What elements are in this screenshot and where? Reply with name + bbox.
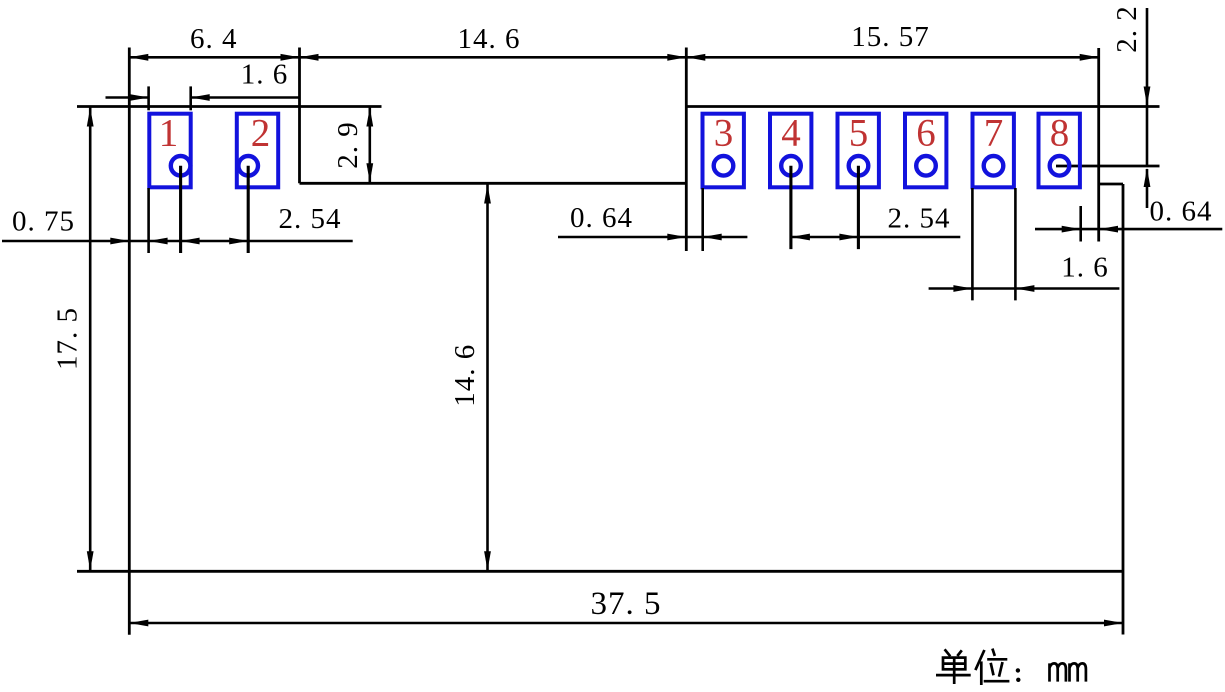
svg-text:4: 4 (781, 112, 801, 155)
svg-text:7: 7 (984, 112, 1004, 155)
svg-text:8: 8 (1050, 112, 1070, 155)
svg-text:1: 1 (159, 112, 179, 155)
svg-text:0. 75: 0. 75 (12, 206, 75, 238)
svg-text:14. 6: 14. 6 (449, 344, 481, 407)
svg-text:6. 4: 6. 4 (190, 23, 238, 55)
svg-text:3: 3 (714, 112, 734, 155)
svg-text:1. 6: 1. 6 (241, 59, 289, 91)
svg-text:37. 5: 37. 5 (591, 586, 662, 622)
svg-text:2. 2: 2. 2 (1111, 5, 1143, 53)
svg-text:15. 57: 15. 57 (851, 21, 930, 53)
svg-text:1. 6: 1. 6 (1061, 252, 1109, 284)
svg-text:2: 2 (251, 112, 271, 155)
svg-text:2. 9: 2. 9 (332, 121, 364, 169)
svg-text:6: 6 (916, 112, 936, 155)
svg-text:2. 54: 2. 54 (888, 203, 951, 235)
svg-text:0. 64: 0. 64 (1150, 196, 1213, 228)
svg-text:0. 64: 0. 64 (570, 202, 633, 234)
svg-text:17. 5: 17. 5 (52, 307, 84, 370)
svg-text:14. 6: 14. 6 (458, 23, 521, 55)
svg-text:2. 54: 2. 54 (279, 203, 342, 235)
svg-text:5: 5 (849, 112, 869, 155)
